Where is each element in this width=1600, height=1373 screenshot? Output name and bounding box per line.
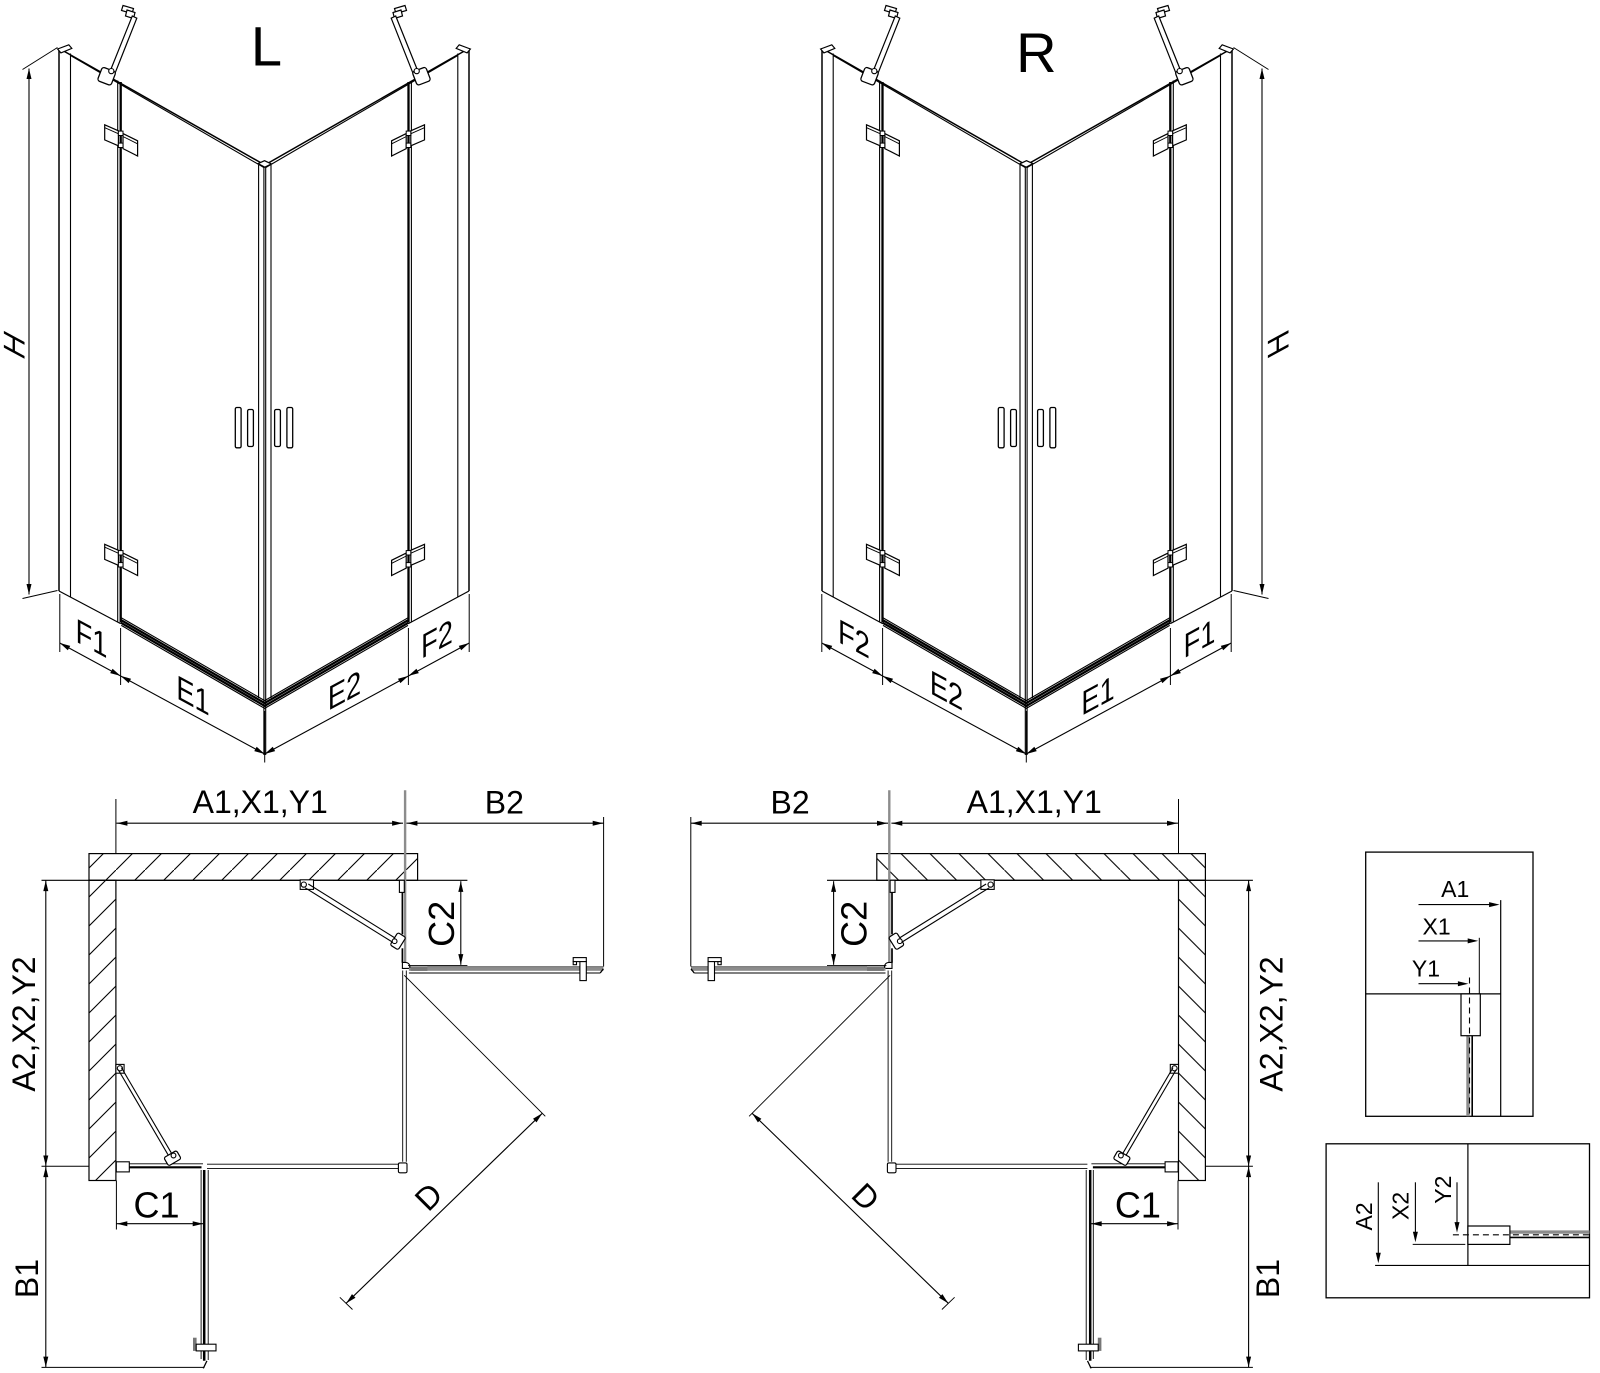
svg-text:C1: C1 [133, 1185, 179, 1226]
svg-text:R: R [1016, 21, 1056, 84]
svg-text:C2: C2 [833, 901, 874, 947]
svg-text:C1: C1 [1115, 1185, 1161, 1226]
svg-text:B1: B1 [1250, 1259, 1286, 1298]
svg-text:Y1: Y1 [1412, 956, 1440, 982]
svg-text:X2: X2 [1388, 1192, 1414, 1220]
svg-text:A1: A1 [1441, 876, 1469, 902]
svg-text:A2: A2 [1351, 1202, 1377, 1230]
svg-text:L: L [251, 15, 282, 78]
svg-text:A2,X2,Y2: A2,X2,Y2 [1254, 956, 1290, 1091]
svg-text:B1: B1 [9, 1259, 45, 1298]
svg-text:Y2: Y2 [1430, 1176, 1456, 1204]
svg-text:A1,X1,Y1: A1,X1,Y1 [193, 784, 328, 820]
svg-text:A2,X2,Y2: A2,X2,Y2 [6, 956, 42, 1091]
svg-text:X1: X1 [1423, 914, 1451, 940]
svg-text:A1,X1,Y1: A1,X1,Y1 [967, 784, 1102, 820]
svg-text:C2: C2 [421, 901, 462, 947]
svg-text:B2: B2 [485, 785, 524, 821]
svg-text:B2: B2 [771, 785, 810, 821]
